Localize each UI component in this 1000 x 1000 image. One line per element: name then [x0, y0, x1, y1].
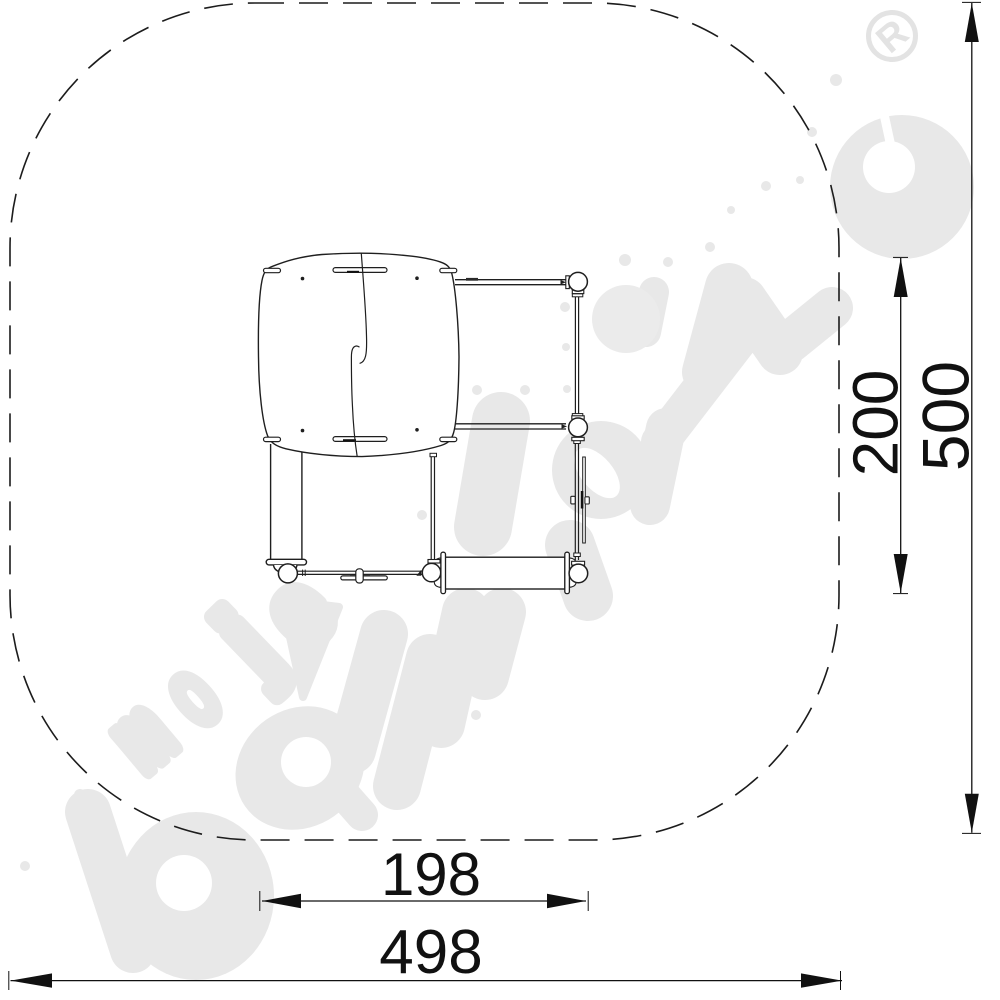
svg-text:500: 500: [909, 361, 983, 471]
svg-text:498: 498: [379, 918, 482, 987]
svg-text:198: 198: [381, 841, 481, 908]
svg-text:200: 200: [840, 370, 912, 477]
